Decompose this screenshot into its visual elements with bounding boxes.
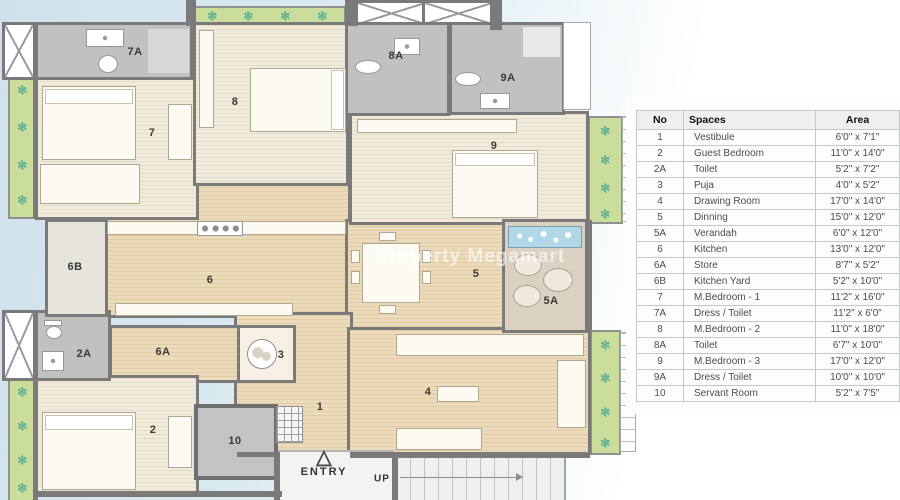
area-table-panel: No Spaces Area 1Vestibule6'0" x 7'1"2Gue… xyxy=(626,96,900,414)
table-cell: Guest Bedroom xyxy=(683,146,815,162)
table-cell: Kitchen Yard xyxy=(683,274,815,290)
plant-icon: ✻ xyxy=(317,9,327,23)
plant-icon: ✻ xyxy=(600,181,610,195)
table-row: 6BKitchen Yard5'2" x 10'0" xyxy=(637,274,900,290)
table-cell: 10 xyxy=(637,386,684,402)
table-row: 9M.Bedroom - 317'0" x 12'0" xyxy=(637,354,900,370)
room-label-4: 4 xyxy=(425,386,432,398)
table-cell: 4 xyxy=(637,194,684,210)
dresser xyxy=(357,119,517,133)
table-cell: 11'0" x 18'0" xyxy=(816,322,900,338)
column-header-spaces: Spaces xyxy=(683,111,815,130)
plant-icon: ✻ xyxy=(600,371,610,385)
table-cell: 6'7" x 10'0" xyxy=(816,338,900,354)
table-cell: 11'0" x 14'0" xyxy=(816,146,900,162)
table-cell: Store xyxy=(683,258,815,274)
wall xyxy=(345,0,358,26)
room-label-9a: 9A xyxy=(500,72,515,84)
wall xyxy=(392,452,398,500)
verandah-chair xyxy=(513,285,541,307)
room-label-8a: 8A xyxy=(388,50,403,62)
plant-icon: ✻ xyxy=(207,9,217,23)
wall xyxy=(490,0,502,30)
table-row: 6AStore8'7" x 5'2" xyxy=(637,258,900,274)
table-row: 5AVerandah6'0" x 12'0" xyxy=(637,226,900,242)
table-cell: 7 xyxy=(637,290,684,306)
table-row: 1Vestibule6'0" x 7'1" xyxy=(637,130,900,146)
table-cell: 13'0" x 12'0" xyxy=(816,242,900,258)
plant-icon: ✻ xyxy=(600,405,610,419)
table-cell: 2 xyxy=(637,146,684,162)
staircase xyxy=(396,457,564,500)
plant-icon: ✻ xyxy=(17,419,27,433)
watermark: Property Megamart xyxy=(375,246,565,268)
table-cell: Vestibule xyxy=(683,130,815,146)
table-row: 4Drawing Room17'0" x 14'0" xyxy=(637,194,900,210)
table-header: No Spaces Area xyxy=(637,111,900,130)
closet-7a xyxy=(148,29,189,73)
room-store xyxy=(112,328,237,380)
water-feature xyxy=(508,226,582,248)
toilet-wc-icon xyxy=(46,326,62,339)
table-row: 9ADress / Toilet10'0" x 10'0" xyxy=(637,370,900,386)
table-cell: 11'2" x 16'0" xyxy=(816,290,900,306)
wardrobe xyxy=(168,104,192,160)
table-cell: 1 xyxy=(637,130,684,146)
table-row: 2AToilet5'2" x 7'2" xyxy=(637,162,900,178)
table-header-row: No Spaces Area xyxy=(637,111,900,130)
table-cell: 6 xyxy=(637,242,684,258)
table-cell: 6'0" x 7'1" xyxy=(816,130,900,146)
room-label-3: 3 xyxy=(278,349,285,361)
floorplan-screenshot: ✻ ✻ ✻ ✻ ✻ ✻ ✻ ✻ ✻ ✻ ✻ ✻ ✻ ✻ ✻ ✻ ✻ ✻ ✻ ✻ xyxy=(0,0,900,500)
table-cell: Dress / Toilet xyxy=(683,306,815,322)
table-row: 5Dinning15'0" x 12'0" xyxy=(637,210,900,226)
plant-icon: ✻ xyxy=(17,158,27,172)
service-ledge xyxy=(563,22,591,110)
room-label-7a: 7A xyxy=(127,46,142,58)
spaces-area-table: No Spaces Area 1Vestibule6'0" x 7'1"2Gue… xyxy=(636,110,900,402)
plant-icon: ✻ xyxy=(17,120,27,134)
dining-chair xyxy=(379,232,396,241)
shaft-bottom-left xyxy=(5,313,33,378)
table-row: 7M.Bedroom - 111'2" x 16'0" xyxy=(637,290,900,306)
room-label-1: 1 xyxy=(317,401,324,413)
sofa xyxy=(557,360,586,428)
table-cell: 5'2" x 10'0" xyxy=(816,274,900,290)
toilet-wc-icon xyxy=(98,55,118,73)
bed-pillow xyxy=(455,153,535,166)
column-header-no: No xyxy=(637,111,684,130)
bed-pillow xyxy=(331,70,344,130)
wall xyxy=(186,0,196,26)
table-cell: 7A xyxy=(637,306,684,322)
table-cell: Toilet xyxy=(683,338,815,354)
room-label-10: 10 xyxy=(228,435,241,447)
stair-arrow-icon xyxy=(516,473,523,481)
table-cell: 6B xyxy=(637,274,684,290)
room-label-2: 2 xyxy=(150,424,157,436)
kitchen-counter xyxy=(115,303,293,316)
table-cell: 3 xyxy=(637,178,684,194)
table-cell: M.Bedroom - 2 xyxy=(683,322,815,338)
plant-icon: ✻ xyxy=(600,436,610,450)
table-cell: 4'0" x 5'2" xyxy=(816,178,900,194)
table-cell: 17'0" x 12'0" xyxy=(816,354,900,370)
puja-rangoli-icon xyxy=(247,339,277,369)
plant-icon: ✻ xyxy=(600,207,610,221)
table-cell: 10'0" x 10'0" xyxy=(816,370,900,386)
dining-chair xyxy=(351,250,360,263)
coffee-table xyxy=(437,386,479,402)
bed-pillow xyxy=(45,89,133,104)
table-cell: Kitchen xyxy=(683,242,815,258)
room-label-9: 9 xyxy=(491,140,498,152)
table-cell: 9A xyxy=(637,370,684,386)
table-row: 7ADress / Toilet11'2" x 6'0" xyxy=(637,306,900,322)
plant-icon: ✻ xyxy=(600,153,610,167)
table-cell: 5A xyxy=(637,226,684,242)
shoe-rack xyxy=(276,406,303,443)
washbasin-icon xyxy=(480,93,510,109)
room-label-5a: 5A xyxy=(543,295,558,307)
wardrobe xyxy=(199,30,214,128)
room-label-5: 5 xyxy=(473,268,480,280)
shower-9a xyxy=(523,27,560,57)
table-cell: 8'7" x 5'2" xyxy=(816,258,900,274)
plant-icon: ✻ xyxy=(17,385,27,399)
plant-icon: ✻ xyxy=(280,9,290,23)
table-cell: 8 xyxy=(637,322,684,338)
table-cell: Drawing Room xyxy=(683,194,815,210)
stove-icon xyxy=(197,221,243,236)
table-cell: Toilet xyxy=(683,162,815,178)
wall xyxy=(350,452,590,458)
washbasin-icon xyxy=(86,29,124,47)
table-cell: 6A xyxy=(637,258,684,274)
plant-icon: ✻ xyxy=(600,124,610,138)
wall xyxy=(585,220,592,332)
room-label-2a: 2A xyxy=(76,348,91,360)
wall xyxy=(33,22,38,218)
table-cell: M.Bedroom - 1 xyxy=(683,290,815,306)
table-cell: 8A xyxy=(637,338,684,354)
table-row: 8AToilet6'7" x 10'0" xyxy=(637,338,900,354)
washbasin-icon xyxy=(42,351,64,371)
dining-chair xyxy=(379,305,396,314)
table-cell: 11'2" x 6'0" xyxy=(816,306,900,322)
room-label-8: 8 xyxy=(232,96,239,108)
bed-pillow xyxy=(45,415,133,430)
room-label-6: 6 xyxy=(207,274,214,286)
table-row: 2Guest Bedroom11'0" x 14'0" xyxy=(637,146,900,162)
shaft-top-center-b xyxy=(425,3,492,24)
dining-chair xyxy=(351,271,360,284)
room-label-6b: 6B xyxy=(67,261,82,273)
table-body: 1Vestibule6'0" x 7'1"2Guest Bedroom11'0"… xyxy=(637,130,900,402)
verandah-chair xyxy=(543,268,573,292)
wardrobe xyxy=(168,416,192,468)
table-row: 8M.Bedroom - 211'0" x 18'0" xyxy=(637,322,900,338)
table-cell: 17'0" x 14'0" xyxy=(816,194,900,210)
plant-icon: ✻ xyxy=(243,9,253,23)
wall xyxy=(237,452,280,457)
plant-icon: ✻ xyxy=(17,481,27,495)
table-cell: M.Bedroom - 3 xyxy=(683,354,815,370)
plant-icon: ✻ xyxy=(17,193,27,207)
dresser xyxy=(40,164,140,204)
toilet-wc-icon xyxy=(455,72,481,86)
plant-icon: ✻ xyxy=(17,83,27,97)
sofa xyxy=(396,428,482,450)
wall xyxy=(33,310,38,500)
table-cell: 15'0" x 12'0" xyxy=(816,210,900,226)
table-cell: Servant Room xyxy=(683,386,815,402)
entry-label: ENTRY xyxy=(301,466,348,478)
table-row: 6Kitchen13'0" x 12'0" xyxy=(637,242,900,258)
table-cell: 9 xyxy=(637,354,684,370)
table-cell: 6'0" x 12'0" xyxy=(816,226,900,242)
table-cell: Verandah xyxy=(683,226,815,242)
table-cell: 2A xyxy=(637,162,684,178)
wall xyxy=(36,491,282,497)
toilet-wc-icon xyxy=(355,60,381,74)
dining-chair xyxy=(422,271,431,284)
table-cell: Dress / Toilet xyxy=(683,370,815,386)
shaft-top-left xyxy=(5,25,33,77)
stair-direction-line xyxy=(400,477,516,478)
plant-icon: ✻ xyxy=(600,338,610,352)
wall xyxy=(274,452,280,500)
table-cell: Puja xyxy=(683,178,815,194)
table-cell: Dinning xyxy=(683,210,815,226)
table-row: 3Puja4'0" x 5'2" xyxy=(637,178,900,194)
up-label: UP xyxy=(374,474,390,485)
table-cell: 5'2" x 7'5" xyxy=(816,386,900,402)
room-label-7: 7 xyxy=(149,127,156,139)
column-header-area: Area xyxy=(816,111,900,130)
shaft-top-center-a xyxy=(358,3,425,24)
table-cell: 5'2" x 7'2" xyxy=(816,162,900,178)
table-row: 10Servant Room5'2" x 7'5" xyxy=(637,386,900,402)
room-label-6a: 6A xyxy=(155,346,170,358)
plant-icon: ✻ xyxy=(17,453,27,467)
table-cell: 5 xyxy=(637,210,684,226)
sofa xyxy=(396,334,584,356)
